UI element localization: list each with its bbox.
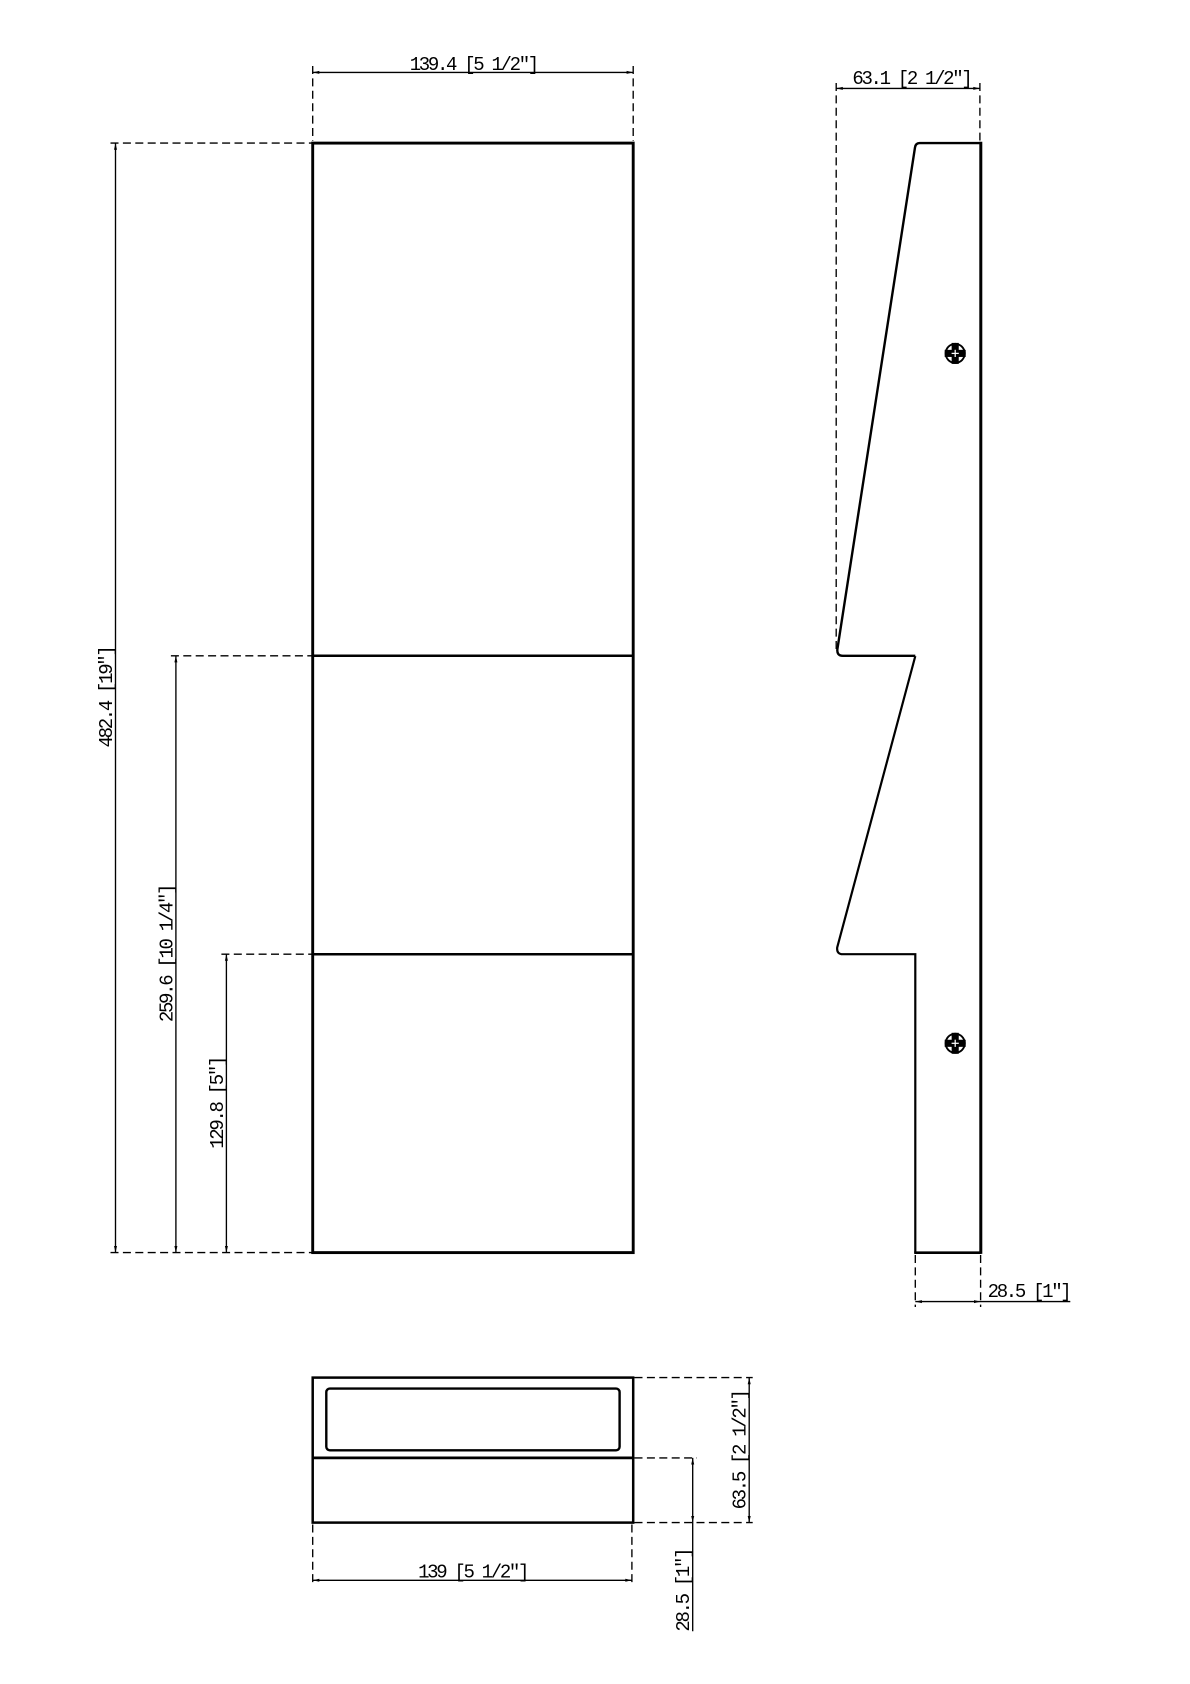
svg-text:63.5 [2 1/2″]: 63.5 [2 1/2″]: [729, 1391, 751, 1509]
svg-text:28.5 [1″]: 28.5 [1″]: [988, 1281, 1070, 1303]
svg-text:259.6 [10 1/4″]: 259.6 [10 1/4″]: [156, 886, 178, 1022]
svg-text:28.5 [1″]: 28.5 [1″]: [673, 1550, 695, 1632]
svg-text:139 [5 1/2″]: 139 [5 1/2″]: [418, 1562, 527, 1584]
svg-text:63.1 [2 1/2″]: 63.1 [2 1/2″]: [852, 68, 970, 90]
svg-text:482.4 [19″]: 482.4 [19″]: [96, 648, 118, 748]
svg-text:139.4 [5 1/2″]: 139.4 [5 1/2″]: [410, 54, 537, 76]
svg-text:129.8 [5″]: 129.8 [5″]: [207, 1058, 229, 1149]
